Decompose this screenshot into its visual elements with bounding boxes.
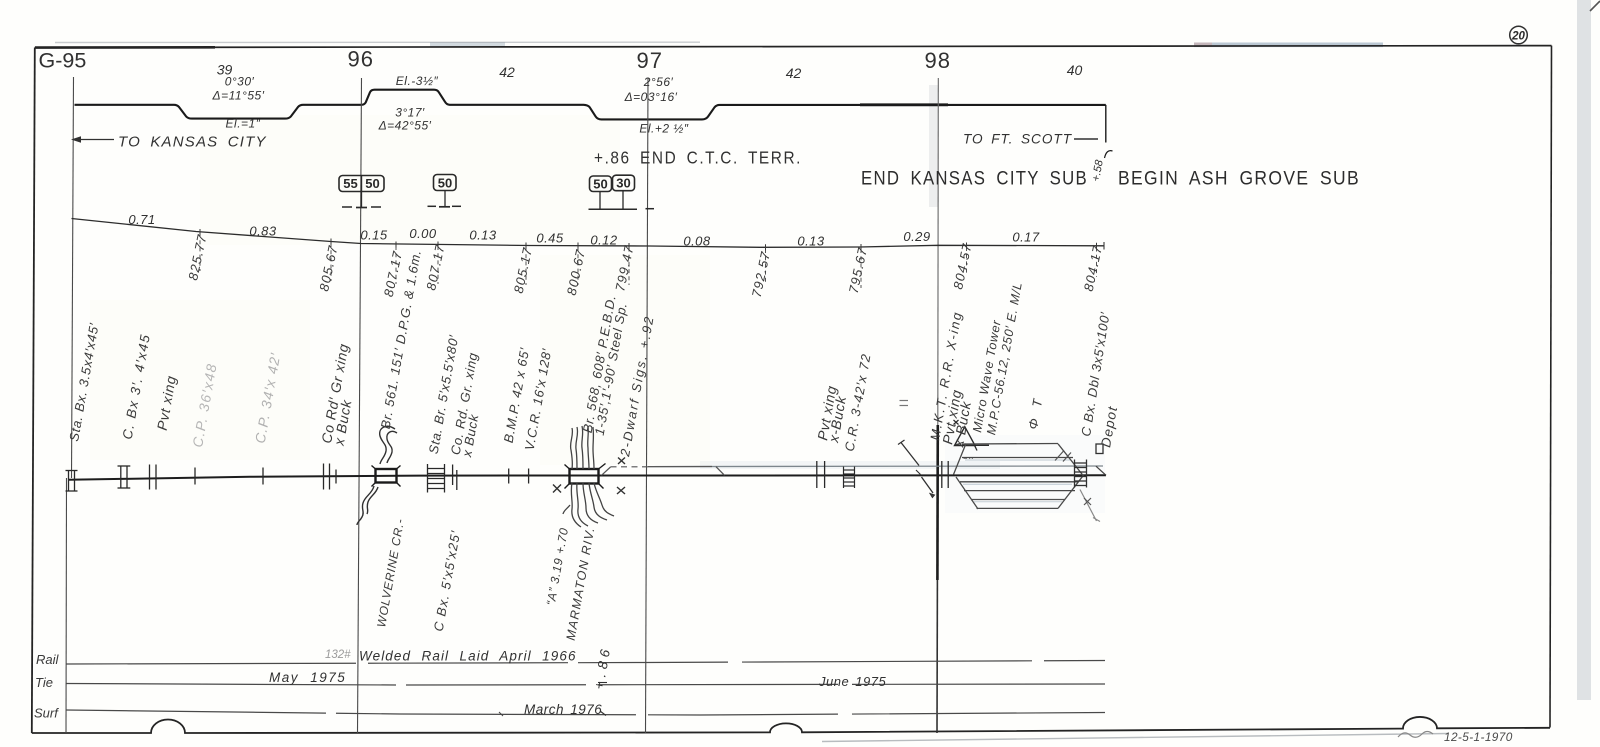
svg-text:Welded Rail Laid April 1966: Welded Rail Laid April 1966 [359, 649, 577, 664]
svg-text:El.=1″: El.=1″ [226, 117, 261, 131]
svg-text:96: 96 [348, 47, 374, 72]
svg-text:0.29: 0.29 [903, 229, 930, 244]
svg-text:+.86 END C.T.C. TERR.: +.86 END C.T.C. TERR. [594, 148, 802, 168]
svg-text:132#: 132# [325, 649, 351, 661]
svg-text:50: 50 [593, 177, 607, 192]
svg-text:May 1975: May 1975 [269, 670, 346, 685]
svg-text:0.17: 0.17 [1012, 230, 1040, 245]
svg-text:Δ=03°16′: Δ=03°16′ [624, 90, 678, 104]
svg-text:Δ=11°55′: Δ=11°55′ [212, 89, 265, 103]
svg-text:G-95: G-95 [39, 49, 87, 73]
svg-text:0.83: 0.83 [249, 224, 277, 239]
svg-text:Surf: Surf [34, 706, 59, 721]
svg-text:55: 55 [343, 176, 357, 191]
svg-text:Tie: Tie [35, 675, 53, 690]
svg-text:TO KANSAS CITY: TO KANSAS CITY [118, 134, 267, 151]
svg-text:El.+2 ½″: El.+2 ½″ [639, 122, 689, 136]
svg-text:BEGIN ASH GROVE SUB: BEGIN ASH GROVE SUB [1118, 168, 1360, 190]
svg-text:0.13: 0.13 [797, 234, 825, 249]
svg-text:0.08: 0.08 [683, 234, 711, 249]
svg-text:20: 20 [1511, 31, 1525, 43]
svg-text:0.12: 0.12 [590, 233, 618, 248]
svg-text:50: 50 [365, 176, 379, 191]
svg-text:Δ=42°55′: Δ=42°55′ [378, 119, 432, 133]
svg-text:TO FT. SCOTT: TO FT. SCOTT [963, 131, 1072, 147]
svg-text:97: 97 [637, 48, 663, 73]
svg-text:March 1976: March 1976 [524, 702, 602, 717]
svg-text:0.71: 0.71 [128, 212, 155, 227]
svg-text:El.-3½″: El.-3½″ [396, 74, 439, 88]
svg-text:42: 42 [786, 65, 802, 81]
svg-text:0.15: 0.15 [360, 228, 388, 243]
svg-text:50: 50 [438, 176, 452, 191]
svg-text:END KANSAS CITY SUB: END KANSAS CITY SUB [861, 168, 1088, 190]
svg-text:0°30′: 0°30′ [225, 75, 255, 89]
svg-text:98: 98 [925, 48, 951, 73]
svg-text:0.45: 0.45 [536, 231, 564, 246]
svg-text:3°17′: 3°17′ [395, 106, 425, 120]
svg-text:42: 42 [499, 64, 515, 80]
svg-text:30: 30 [616, 176, 630, 191]
svg-text:2°56′: 2°56′ [643, 75, 674, 89]
svg-text:Rail: Rail [36, 652, 60, 667]
svg-text:June 1975: June 1975 [818, 674, 886, 689]
svg-text:12-5-1-1970: 12-5-1-1970 [1444, 730, 1513, 744]
svg-text:40: 40 [1067, 62, 1083, 78]
svg-text:0.00: 0.00 [409, 226, 437, 241]
svg-text:0.13: 0.13 [469, 228, 497, 243]
